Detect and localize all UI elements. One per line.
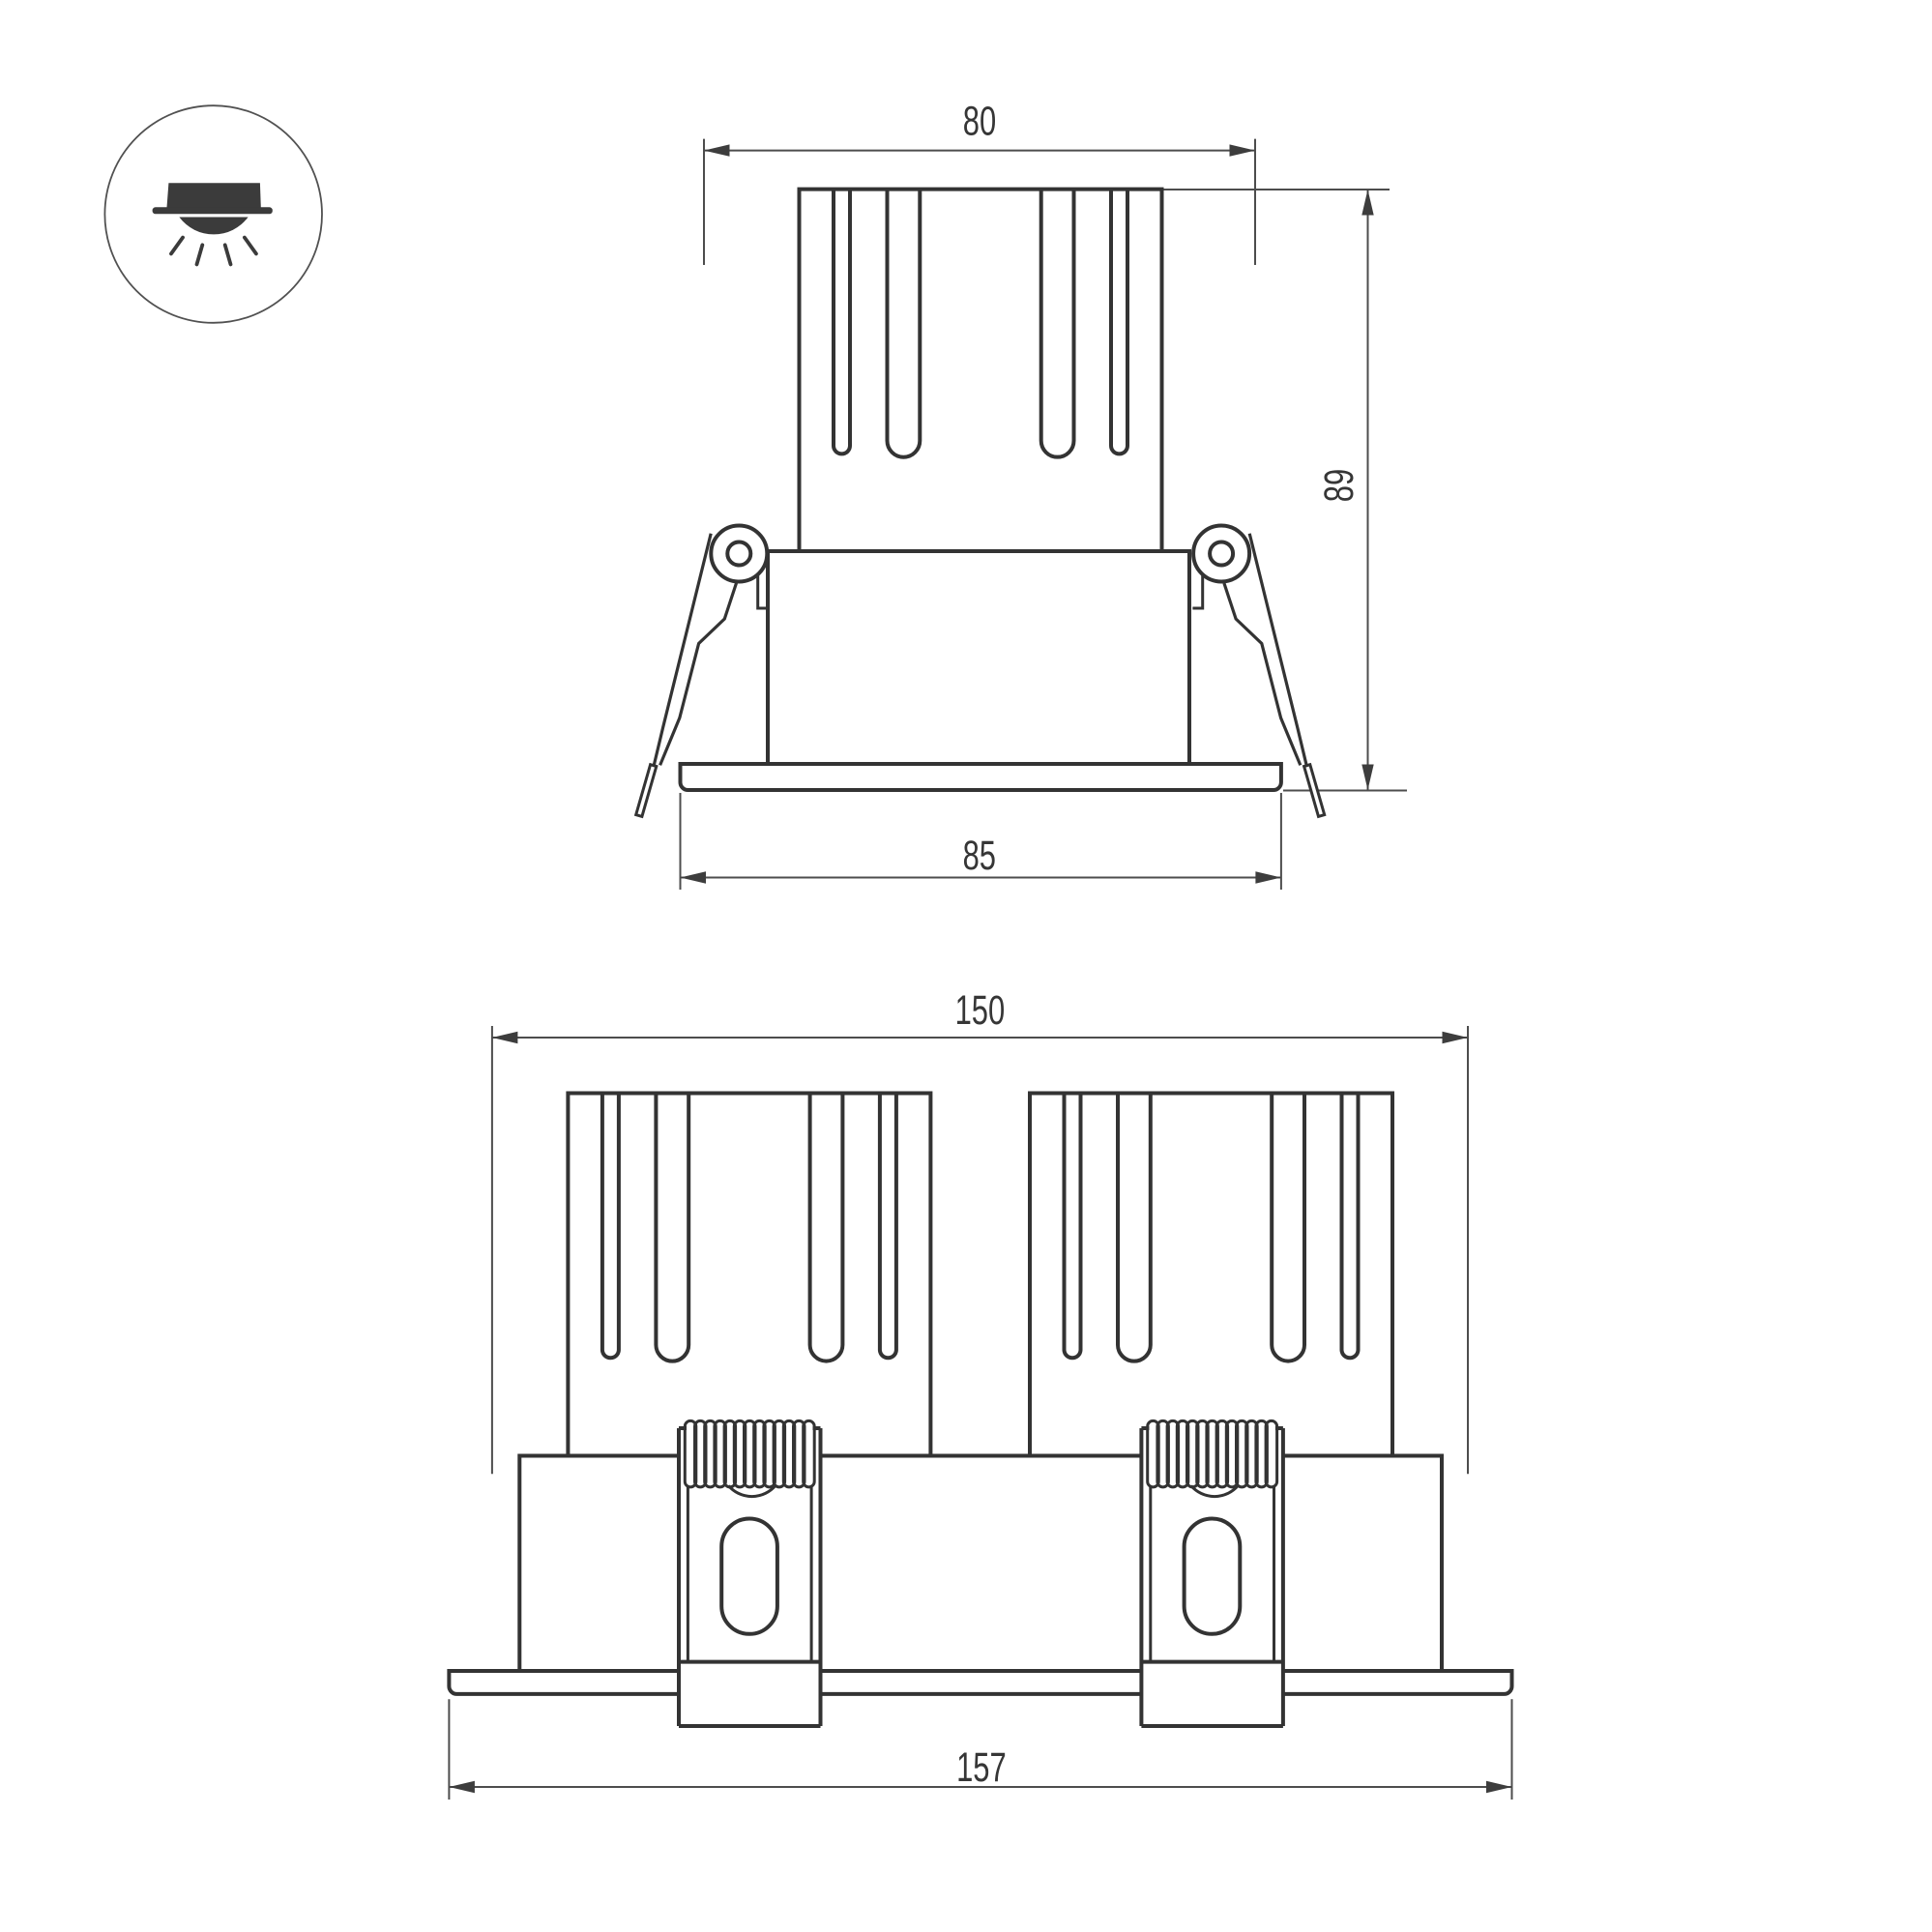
svg-text:85: 85	[963, 832, 996, 878]
svg-text:80: 80	[963, 97, 996, 143]
svg-text:150: 150	[955, 986, 1006, 1033]
svg-text:157: 157	[956, 1743, 1007, 1790]
svg-text:89: 89	[1315, 469, 1361, 502]
